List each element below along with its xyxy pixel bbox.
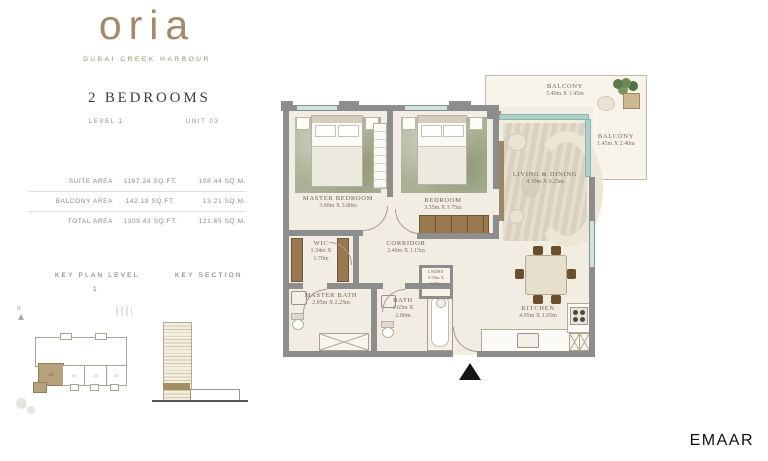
room-dims: 2.95m X 2.25m xyxy=(293,300,369,308)
armchair-icon xyxy=(507,133,527,151)
room-dims: 3.60m X 3.80m xyxy=(289,203,387,211)
room-name: BALCONY xyxy=(589,133,643,141)
nightstand-icon xyxy=(469,117,483,130)
area-row-sqft: 1167.24 SQ.FT. xyxy=(113,172,188,192)
dining-chair-icon xyxy=(551,295,561,304)
room-dims: 4.95m X 1.95m xyxy=(493,313,583,321)
key-section-tower xyxy=(163,322,192,402)
bedroom-label: BEDROOM 3.55m X 3.75m xyxy=(395,197,491,213)
wall xyxy=(371,289,377,351)
kitchen-label: KITCHEN 4.95m X 1.95m xyxy=(493,305,583,321)
master-bedroom-label: MASTER BEDROOM 3.60m X 3.80m xyxy=(289,195,387,211)
wall-column xyxy=(449,101,471,111)
creek-watermark-icon xyxy=(116,306,132,316)
nightstand-icon xyxy=(402,117,416,130)
pouf-icon xyxy=(509,209,524,224)
area-row-sqft: 1309.43 SQ.FT. xyxy=(113,212,188,232)
area-row-sqm: 13.21 SQ.M. xyxy=(188,192,246,212)
wardrobe-icon xyxy=(419,215,489,234)
north-arrow-icon xyxy=(18,314,24,320)
area-row-label: BALCONY AREA xyxy=(28,192,113,212)
area-row-label: SUITE AREA xyxy=(28,172,113,192)
room-name: KITCHEN xyxy=(493,305,583,313)
dining-chair-icon xyxy=(515,269,524,279)
tree-sketch-icon xyxy=(27,406,35,414)
key-plan-annex xyxy=(33,382,47,393)
key-plan-unit: 06 xyxy=(106,365,127,386)
table-row: SUITE AREA 1167.24 SQ.FT. 108.44 SQ.M. xyxy=(28,172,246,192)
room-name: BATH xyxy=(381,297,425,305)
unit-label: UNIT 03 xyxy=(186,119,219,125)
room-name: WIC xyxy=(301,240,341,248)
wall xyxy=(353,236,359,283)
wall xyxy=(477,351,595,357)
shower-icon xyxy=(319,333,369,351)
dining-chair-icon xyxy=(533,295,543,304)
nightstand-icon xyxy=(296,117,310,130)
wall xyxy=(493,215,499,239)
room-dims: 1.45m X 2.40m xyxy=(589,141,643,149)
room-name: MASTER BATH xyxy=(293,292,369,300)
room-dims: 0.70m xyxy=(422,281,450,287)
room-dims: 3.55m X 3.75m xyxy=(395,205,491,213)
wall xyxy=(387,105,393,197)
room-name: MASTER BEDROOM xyxy=(289,195,387,203)
wic-label: WIC 1.34m X 1.70m xyxy=(301,240,341,264)
room-dims: 1.65m X xyxy=(381,305,425,313)
room-name: BEDROOM xyxy=(395,197,491,205)
toilet-icon xyxy=(381,321,394,337)
table-row: BALCONY AREA 142.19 SQ.FT. 13.21 SQ.M. xyxy=(28,192,246,212)
bath-label: BATH 1.65m X 2.80m xyxy=(381,297,425,321)
entrance-marker-icon xyxy=(459,363,481,380)
area-row-sqm: 108.44 SQ.M. xyxy=(188,172,246,192)
north-compass-icon: N xyxy=(17,306,21,312)
dining-chair-icon xyxy=(551,246,561,255)
wall xyxy=(283,351,453,357)
room-dims: 4.10m X 6.25m xyxy=(501,179,589,187)
room-dims: 2.80m xyxy=(381,313,425,321)
table-row: TOTAL AREA 1309.43 SQ.FT. 121.65 SQ.M. xyxy=(28,212,246,232)
window xyxy=(590,221,594,267)
key-plan-foot xyxy=(110,384,119,391)
key-plan-notch xyxy=(60,333,72,340)
key-plan-foot xyxy=(90,384,99,391)
planter-pot-icon xyxy=(623,93,640,109)
master-bed-icon xyxy=(311,115,363,187)
balcony-top-label: BALCONY 5.40m X 1.45m xyxy=(505,83,625,99)
corridor-label: CORRIDOR 2.40m X 1.15m xyxy=(367,240,445,256)
room-dims: 1.34m X xyxy=(301,248,341,256)
room-name: CORRIDOR xyxy=(367,240,445,248)
key-plan-foot xyxy=(70,384,79,391)
key-plan-title: KEY PLAN LEVEL xyxy=(55,272,140,279)
dining-chair-icon xyxy=(533,246,543,255)
glass-wall xyxy=(499,114,589,120)
key-plan-unit: 04 xyxy=(62,365,86,386)
room-dims: 2.40m X 1.15m xyxy=(367,248,445,256)
window xyxy=(297,106,337,110)
room-dims: 5.40m X 1.45m xyxy=(505,91,625,99)
wall xyxy=(283,283,303,289)
laundry-closet: LNDRY 0.95m X 0.70m xyxy=(419,265,453,299)
room-name: LIVING & DINING xyxy=(501,171,589,179)
key-section-highlight-band xyxy=(163,383,190,390)
wall-column xyxy=(339,101,359,111)
balcony-right-label: BALCONY 1.45m X 2.40m xyxy=(589,133,643,149)
kitchen-sink-icon xyxy=(517,333,539,348)
key-plan-level: 1 xyxy=(93,286,97,293)
floor-plan: LNDRY 0.95m X 0.70m BALCONY 5.40m X 1.45… xyxy=(283,75,649,395)
key-section-title: KEY SECTION xyxy=(175,272,243,279)
tree-sketch-icon xyxy=(16,398,27,409)
key-plan-unit: 05 xyxy=(84,365,108,386)
bathtub-icon xyxy=(427,291,453,351)
emaar-logo: EMAAR xyxy=(690,432,754,450)
page-title: 2 BEDROOMS xyxy=(88,90,211,107)
living-label: LIVING & DINING 4.10m X 6.25m xyxy=(501,171,589,187)
closet-icon xyxy=(373,123,387,189)
room-name: BALCONY xyxy=(505,83,625,91)
wall xyxy=(283,230,363,236)
area-row-sqm: 121.65 SQ.M. xyxy=(188,212,246,232)
wall xyxy=(589,177,595,357)
key-section-ground-line xyxy=(152,400,248,402)
area-row-sqft: 142.19 SQ.FT. xyxy=(113,192,188,212)
window xyxy=(405,106,447,110)
oria-logo: oria xyxy=(82,2,212,49)
room-dims: 1.70m xyxy=(301,256,341,264)
area-row-label: TOTAL AREA xyxy=(28,212,113,232)
level-label: LEVEL 1 xyxy=(89,119,124,125)
master-bath-label: MASTER BATH 2.95m X 2.25m xyxy=(293,292,369,308)
bed-icon xyxy=(417,115,467,185)
area-table: SUITE AREA 1167.24 SQ.FT. 108.44 SQ.M. B… xyxy=(28,172,246,231)
toilet-icon xyxy=(291,313,304,329)
dining-table-icon xyxy=(525,255,567,295)
wall xyxy=(417,233,493,239)
dining-chair-icon xyxy=(567,269,576,279)
key-plan-notch xyxy=(95,333,107,340)
brand-tagline: DUBAI CREEK HARBOUR xyxy=(82,56,212,63)
